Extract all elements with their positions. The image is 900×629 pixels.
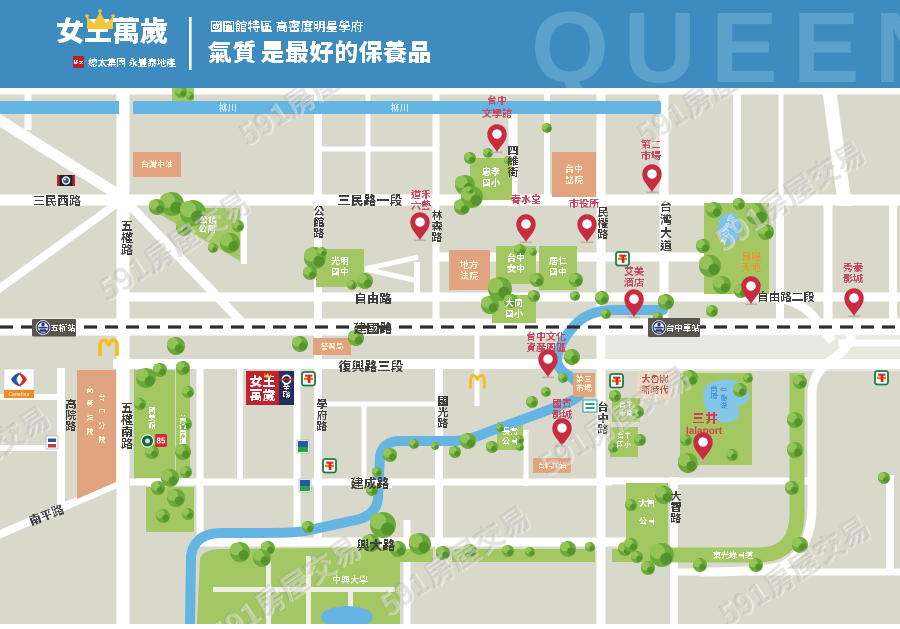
svg-text:Carrefour: Carrefour xyxy=(8,392,29,398)
svg-text:85: 85 xyxy=(157,437,166,446)
